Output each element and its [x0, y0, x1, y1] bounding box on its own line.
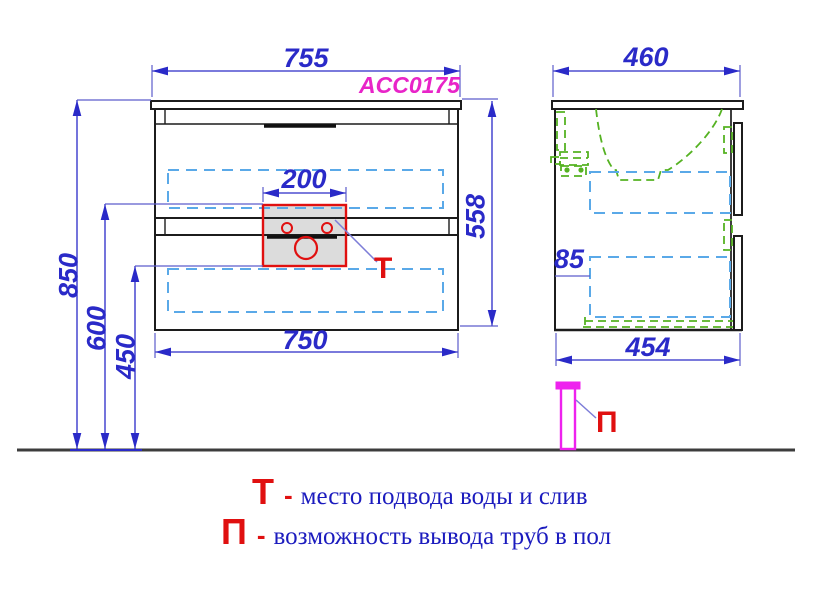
- dim-total-height: 850: [56, 226, 83, 326]
- legend-row-t: Т - место подвода воды и слив: [252, 474, 588, 511]
- legend-t-text: место подвода воды и слив: [301, 483, 588, 511]
- dim-drain-height: 450: [113, 307, 140, 407]
- sink-bowl-profile: [596, 109, 722, 180]
- plinth-dashed: [583, 317, 733, 327]
- side-bottom-drawer-front: [734, 236, 742, 330]
- dim-side-inset: 85: [554, 246, 598, 273]
- legend-t-dash: -: [284, 480, 293, 511]
- side-top-drawer-front: [734, 123, 742, 215]
- dim-front-bottom-width: 750: [255, 327, 355, 354]
- side-top-drawer-dashed: [590, 172, 730, 213]
- front-view: [151, 101, 461, 330]
- side-bottom-drawer-dashed: [590, 257, 730, 317]
- legend-p-dash: -: [257, 520, 266, 551]
- legend-t-marker: Т: [252, 474, 274, 510]
- dim-front-top-width: 755: [256, 45, 356, 72]
- dim-supply-height: 600: [84, 279, 111, 379]
- dim-side-bottom-depth: 454: [598, 334, 698, 361]
- legend-p-text: возможность вывода труб в пол: [274, 523, 612, 551]
- dim-cabinet-height: 558: [463, 167, 490, 267]
- dim-side-top-depth: 460: [596, 44, 696, 71]
- legend-p-marker: П: [221, 514, 247, 550]
- t-marker: Т: [374, 254, 392, 284]
- legend-row-p: П - возможность вывода труб в пол: [221, 514, 611, 551]
- dim-cutout-width: 200: [264, 166, 344, 193]
- model-code: ACC0175: [340, 74, 460, 97]
- vanity-dimension-drawing: 755 ACC0175 200 558 850 600 450 750 460 …: [0, 0, 815, 600]
- p-marker: П: [596, 408, 618, 438]
- p-leader-line: [576, 400, 596, 418]
- side-view: [551, 101, 743, 330]
- siphon-and-fittings: [551, 112, 588, 176]
- front-countertop: [151, 101, 461, 109]
- floor-pipe: [556, 382, 596, 449]
- side-countertop: [552, 101, 743, 109]
